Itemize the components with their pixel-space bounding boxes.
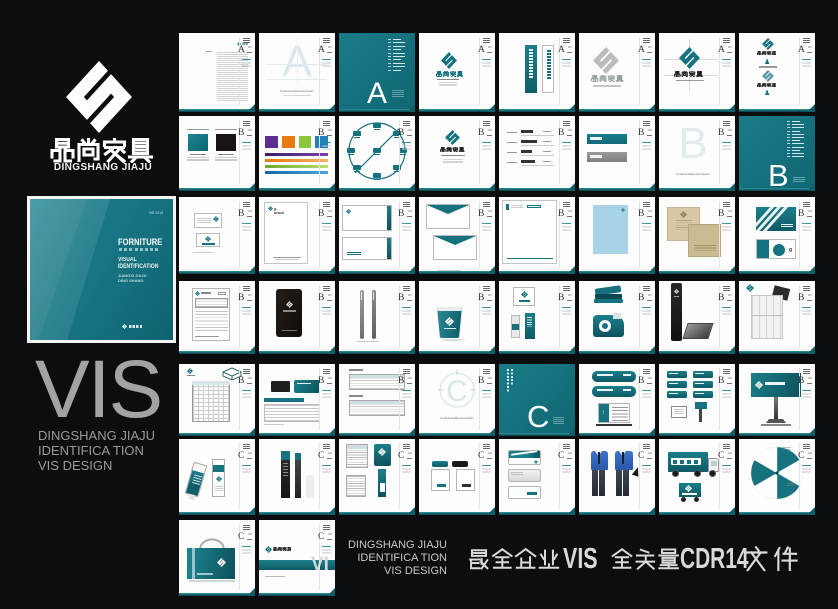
svg-text:C: C xyxy=(446,375,468,408)
